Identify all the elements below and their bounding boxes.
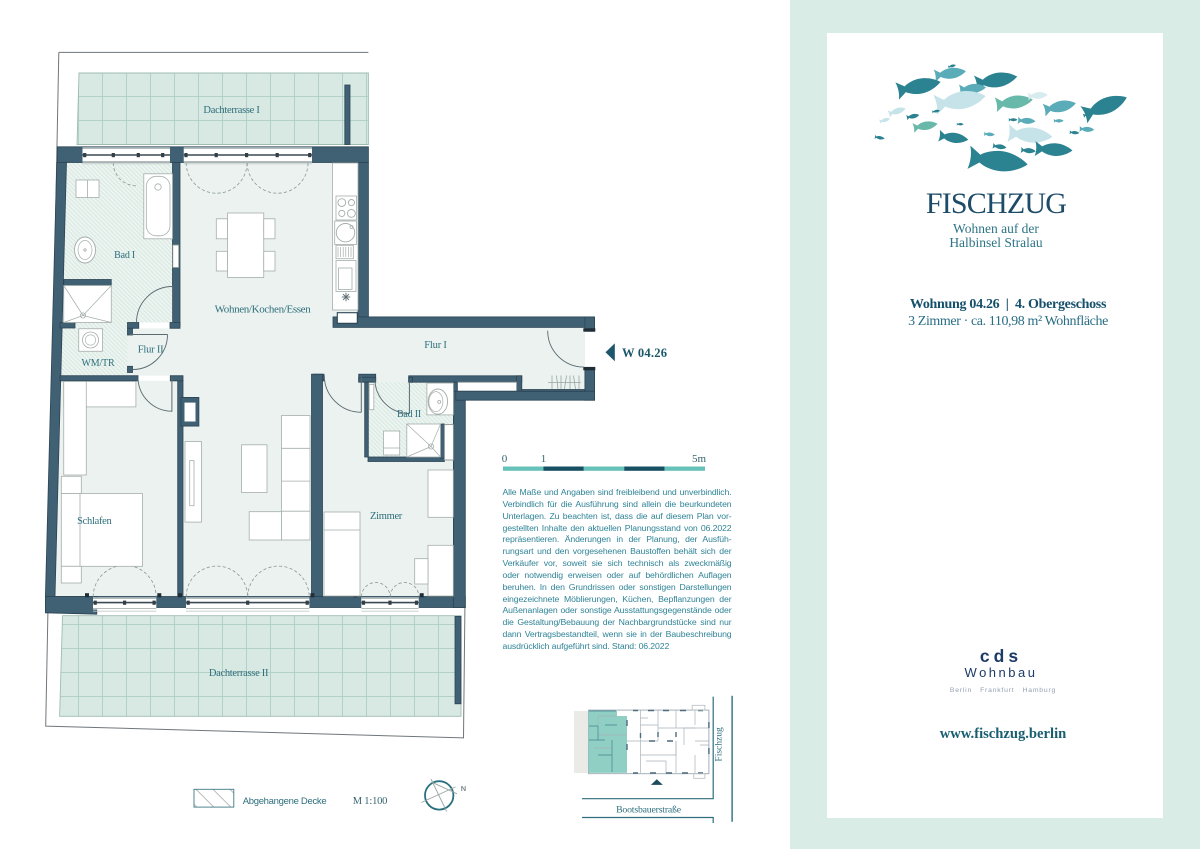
svg-text:Dachterrasse I: Dachterrasse I — [203, 105, 260, 116]
svg-text:0: 0 — [502, 453, 508, 465]
svg-text:5m: 5m — [692, 453, 707, 465]
svg-text:Bootsbauerstraße: Bootsbauerstraße — [616, 805, 682, 816]
svg-text:Schlafen: Schlafen — [77, 516, 112, 527]
svg-text:WM/TR: WM/TR — [82, 358, 115, 369]
svg-text:N: N — [461, 784, 466, 793]
svg-text:M 1:100: M 1:100 — [353, 796, 387, 807]
svg-text:W 04.26: W 04.26 — [622, 346, 667, 360]
svg-text:Abgehangene Decke: Abgehangene Decke — [243, 796, 327, 807]
svg-text:Bad I: Bad I — [114, 250, 135, 261]
svg-text:Wohnen/Kochen/Essen: Wohnen/Kochen/Essen — [215, 303, 312, 315]
svg-text:Flur II: Flur II — [138, 345, 164, 356]
svg-text:1: 1 — [541, 453, 547, 465]
svg-text:Dachterrasse II: Dachterrasse II — [209, 668, 269, 679]
svg-text:Zimmer: Zimmer — [370, 511, 403, 522]
svg-text:Bad II: Bad II — [397, 409, 421, 420]
svg-text:Fischzug: Fischzug — [715, 727, 725, 762]
svg-text:Flur I: Flur I — [424, 340, 447, 351]
